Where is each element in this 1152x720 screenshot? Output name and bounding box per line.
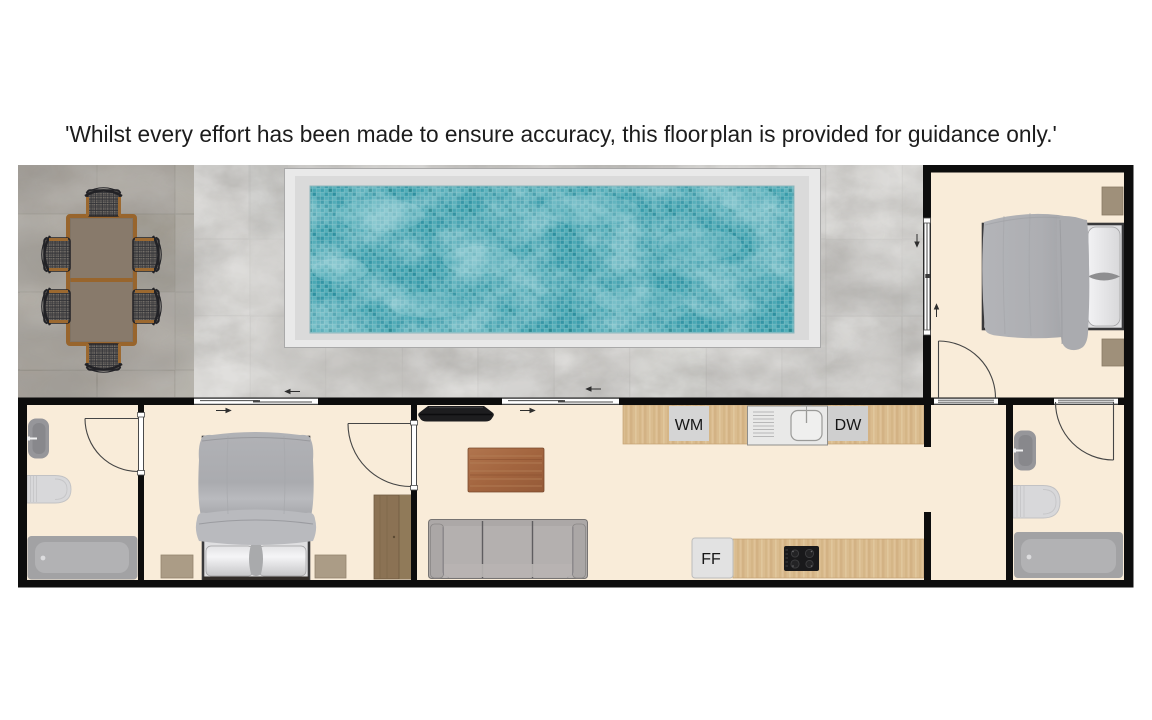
svg-text:WM: WM	[675, 417, 703, 434]
svg-text:DW: DW	[835, 417, 863, 434]
svg-text:'Whilst every effort has been: 'Whilst every effort has been made to en…	[65, 121, 1057, 147]
svg-text:FF: FF	[701, 551, 721, 568]
